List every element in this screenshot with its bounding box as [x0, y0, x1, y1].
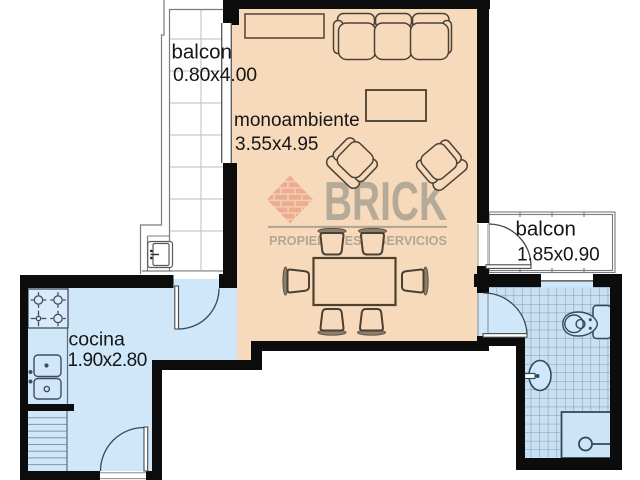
- svg-text:cocina: cocina: [69, 329, 126, 351]
- svg-text:balcon: balcon: [516, 218, 576, 241]
- svg-text:3.55x4.95: 3.55x4.95: [235, 134, 318, 155]
- svg-text:0.80x4.00: 0.80x4.00: [173, 64, 257, 86]
- svg-text:1.90x2.80: 1.90x2.80: [68, 350, 147, 371]
- svg-text:monoambiente: monoambiente: [234, 110, 360, 131]
- svg-text:PROPIEDADES & SERVICIOS: PROPIEDADES & SERVICIOS: [269, 233, 447, 248]
- svg-text:balcon: balcon: [172, 41, 232, 64]
- svg-text:1.85x0.90: 1.85x0.90: [517, 245, 600, 266]
